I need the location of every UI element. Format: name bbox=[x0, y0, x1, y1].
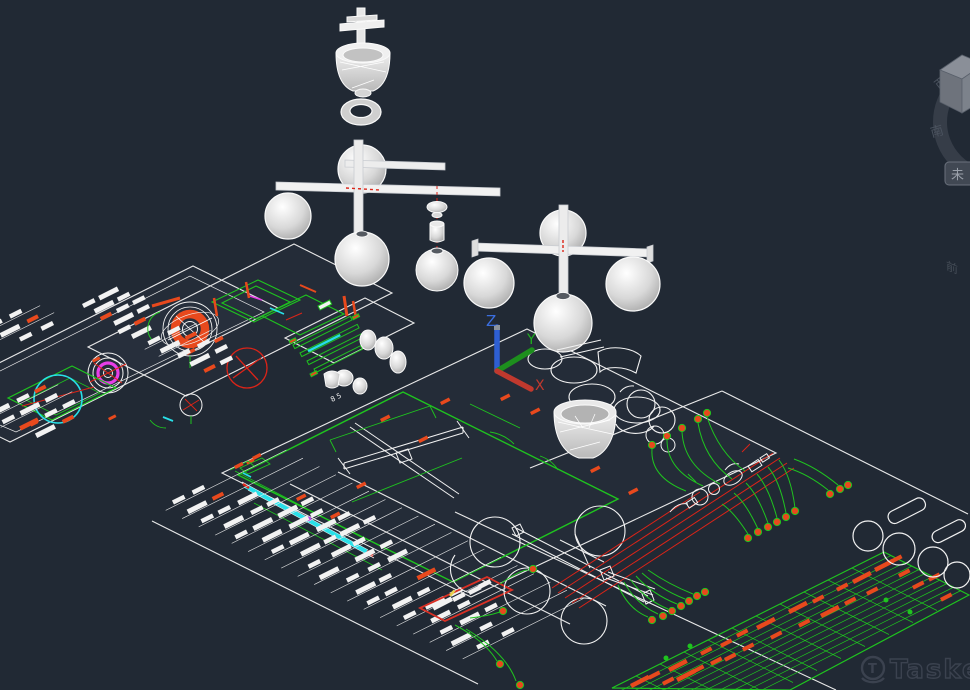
ucs-z-label: Z bbox=[486, 312, 496, 330]
watermark-text: Tasker bbox=[890, 655, 970, 685]
cad-viewport[interactable]: 8 5 bbox=[0, 0, 970, 690]
ring-part[interactable] bbox=[341, 99, 381, 125]
balloon-row-mid bbox=[722, 459, 852, 542]
svg-text:8 5: 8 5 bbox=[329, 392, 343, 404]
finial-cross[interactable] bbox=[340, 8, 384, 46]
ucs-y-label: Y bbox=[526, 332, 536, 348]
watermark-logo-letter: T bbox=[868, 662, 877, 677]
sheet-right-content[interactable] bbox=[600, 386, 970, 690]
viewcube-face-label[interactable]: 前 bbox=[946, 258, 958, 277]
viewcube-corner-button-label[interactable]: 未 bbox=[951, 168, 964, 183]
balloon-fan-bottom bbox=[600, 566, 709, 624]
top-bowl[interactable] bbox=[336, 43, 390, 97]
tasker-watermark: T Tasker bbox=[862, 655, 970, 685]
viewcube-icon[interactable]: 西 南 前 未 bbox=[929, 55, 970, 277]
ucs-x-label: X bbox=[535, 378, 545, 394]
drawing-sheets[interactable] bbox=[0, 244, 968, 690]
